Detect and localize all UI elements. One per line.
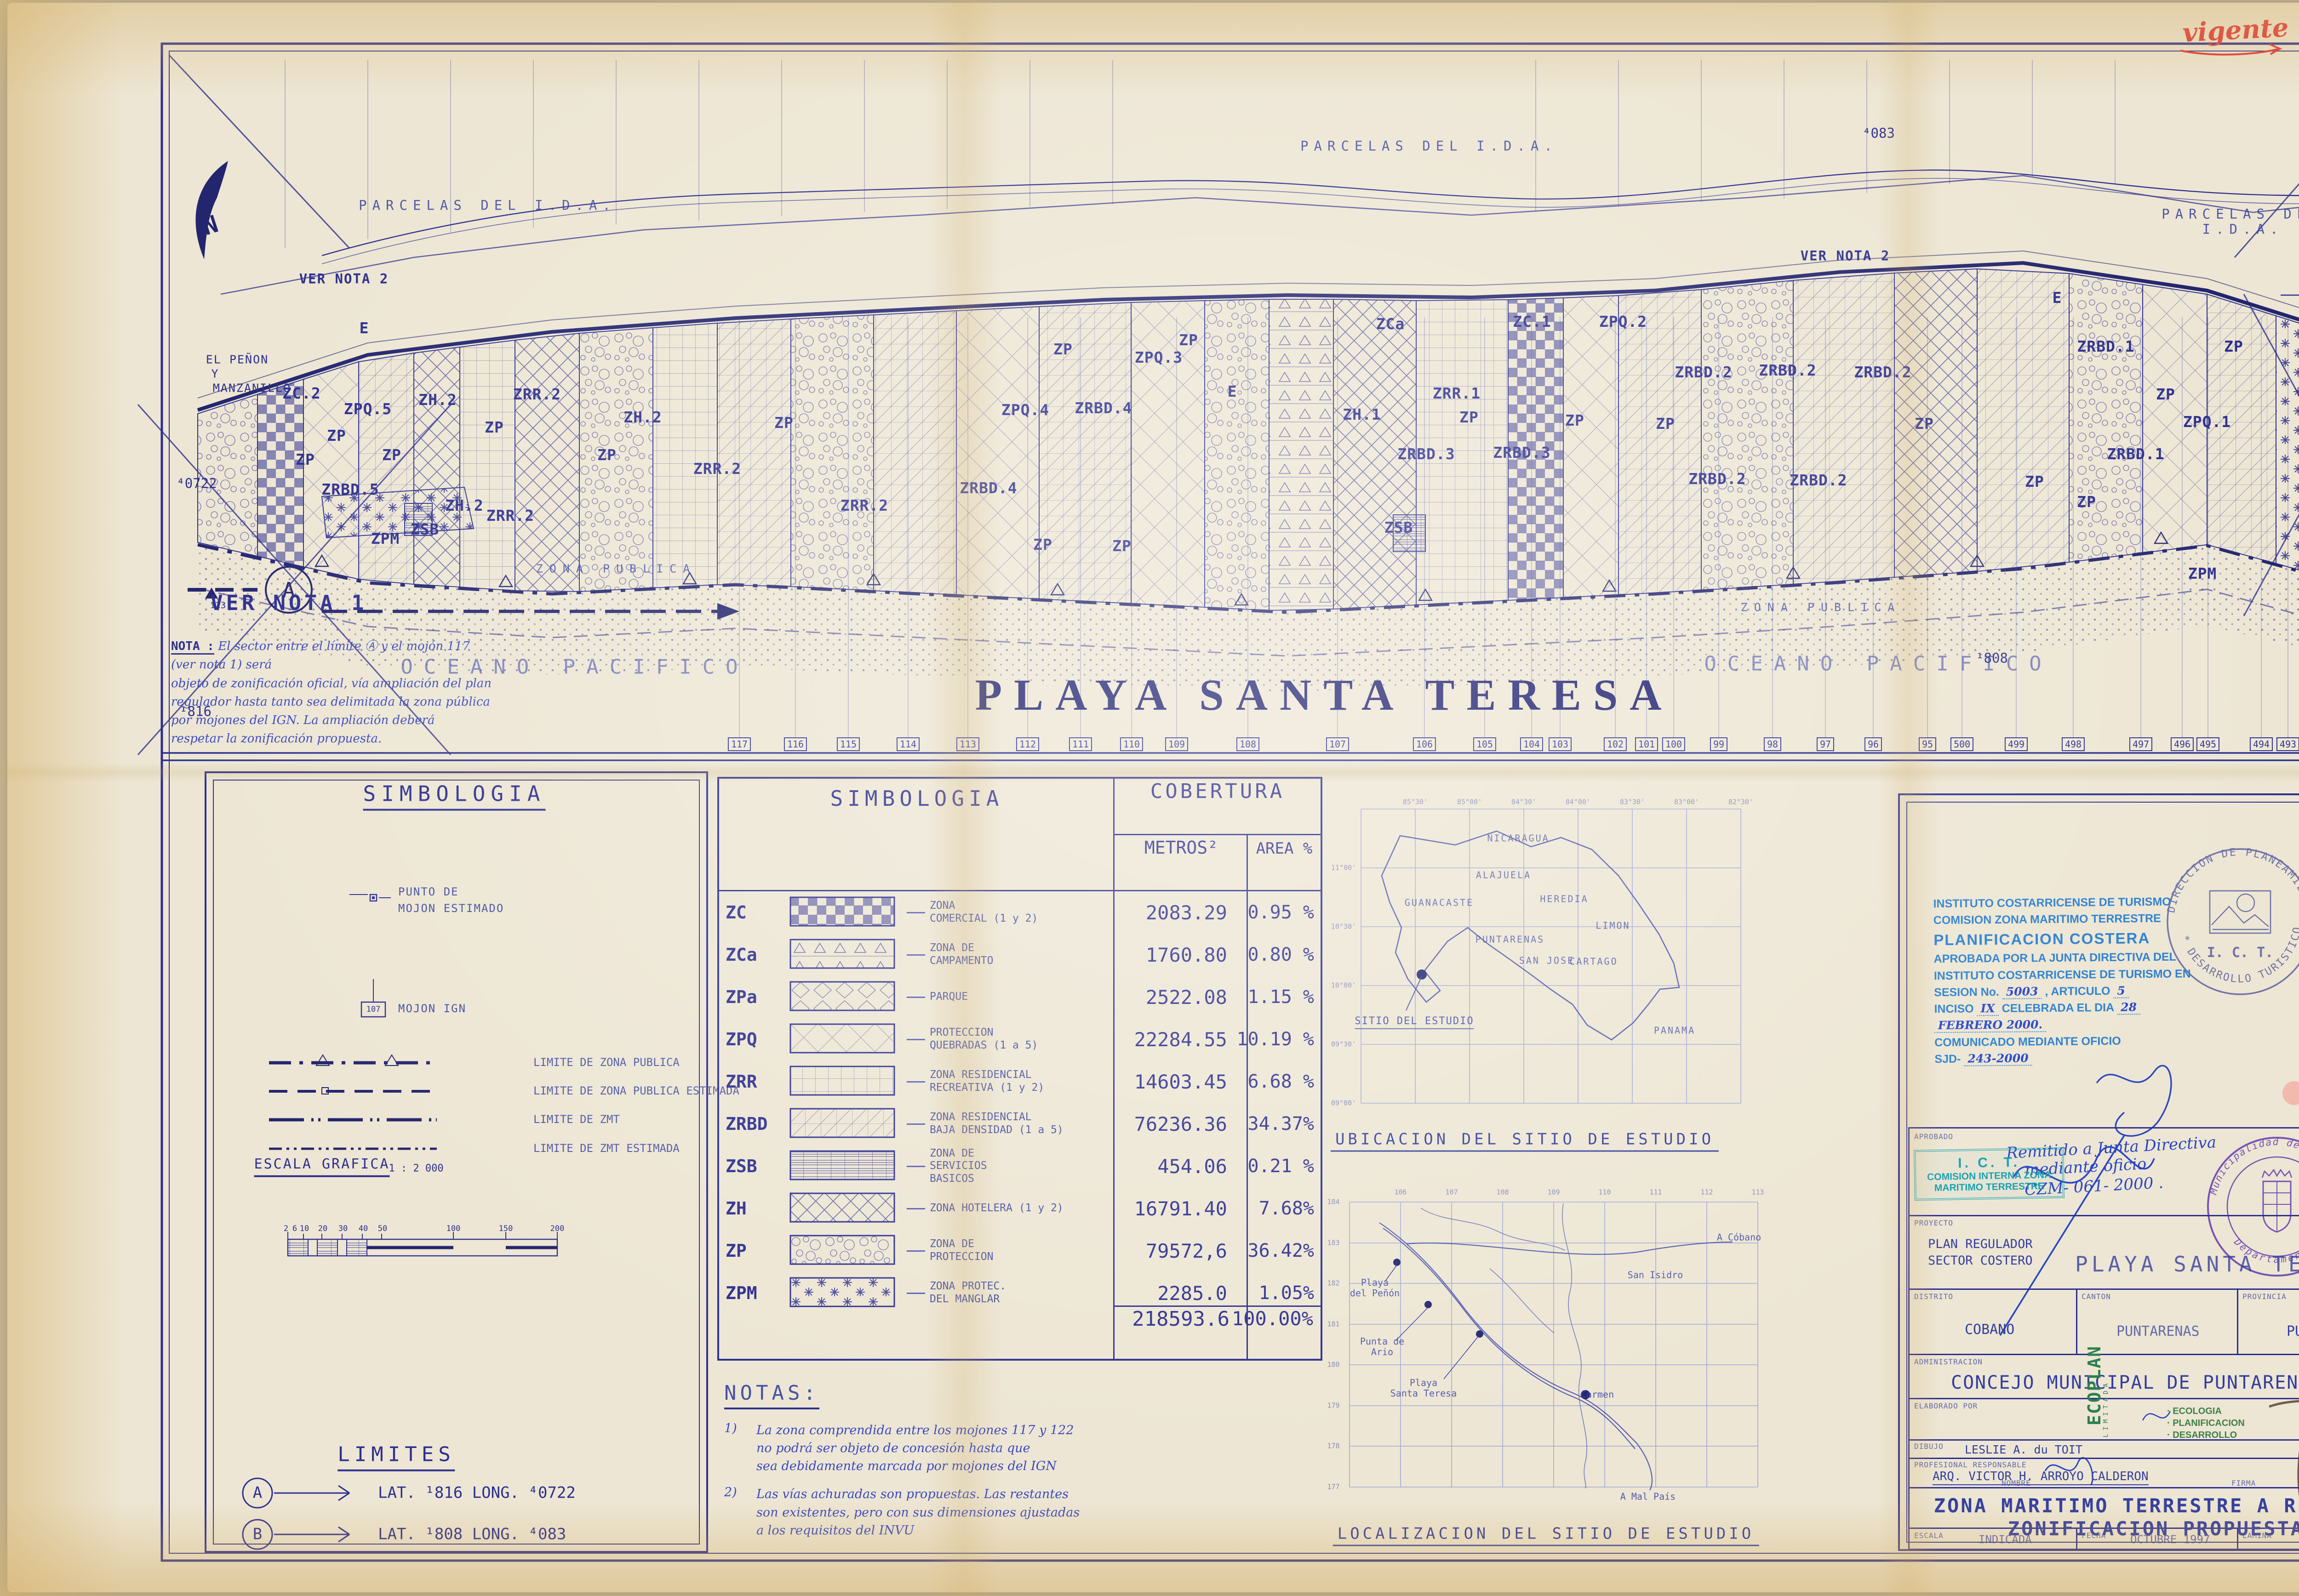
proyecto-label: PROYECTO — [1914, 1219, 1953, 1227]
leader-dash — [907, 1123, 925, 1125]
proyecto-line2: SECTOR COSTERO — [1928, 1254, 2033, 1268]
coverage-row: ZCZONACOMERCIAL (1 y 2)2083.290.95 % — [719, 891, 1321, 934]
proyecto-name: PLAYA SANTA TERESA — [2075, 1252, 2299, 1277]
zone-description: ZONA RESIDENCIALRECREATIVA (1 y 2) — [930, 1069, 1113, 1094]
coverage-row: ZCaZONA DECAMPAMENTO1760.800.80 % — [719, 934, 1321, 976]
table-rows: ZCZONACOMERCIAL (1 y 2)2083.290.95 %ZCaZ… — [719, 891, 1321, 1314]
leader-dash — [907, 1293, 925, 1294]
stamp-field-label: CELEBRADA EL DIA — [2002, 1001, 2114, 1015]
titleblock: APROBADO Remitido a Junta Directiva medi… — [1908, 1127, 2299, 1550]
zone-description: ZONA HOTELERA (1 y 2) — [930, 1202, 1113, 1215]
coverage-row: ZPQPROTECCIONQUEBRADAS (1 a 5)22284.5510… — [719, 1018, 1321, 1060]
zone-metros: 76236.36 — [1113, 1113, 1227, 1135]
stamp-line: APROBADA POR LA JUNTA DIRECTIVA DEL — [1933, 949, 2163, 968]
zone-area: 1.05% — [1227, 1282, 1321, 1304]
zone-code: ZP — [719, 1241, 789, 1261]
zone-area: 7.68% — [1227, 1198, 1321, 1219]
stamp-field-label: SJD- — [1934, 1053, 1961, 1066]
notes-title: NOTAS: — [724, 1381, 819, 1409]
scanned-zoning-plan-sheet: N — [0, 0, 2299, 1596]
ecoplan-name: ECOPLAN — [2084, 1345, 2105, 1425]
firma-label: FIRMA — [2231, 1479, 2256, 1488]
legend-line-label: LIMITE DE ZMT — [533, 1113, 620, 1126]
zone-metros: 79572,6 — [1113, 1240, 1227, 1262]
zone-swatch — [789, 1108, 907, 1140]
coverage-row: ZPaPARQUE2522.081.15 % — [719, 976, 1321, 1018]
stamp-field-label: SESION No. — [1934, 986, 1999, 999]
total-metros: 218593.6 — [1115, 1307, 1230, 1331]
leader-dash — [907, 912, 925, 913]
stamp-line: COMISION ZONA MARITIMO TERRESTRE — [1933, 910, 2163, 929]
zone-metros: 14603.45 — [1113, 1071, 1227, 1093]
zone-swatch — [789, 939, 907, 971]
note-line: respetar la zonificación propuesta. — [171, 730, 493, 748]
coverage-row: ZSBZONA DESERVICIOSBASICOS454.060.21 % — [719, 1145, 1321, 1187]
prof-label: PROFESIONAL RESPONSABLE — [1914, 1460, 2027, 1469]
zone-swatch — [789, 1192, 907, 1225]
zone-code: ZPQ — [719, 1029, 789, 1049]
zone-code: ZCa — [719, 945, 789, 965]
zone-area: 0.80 % — [1227, 944, 1321, 965]
stamp-field-value: FEBRERO 2000. — [1934, 1018, 2047, 1033]
leader-dash — [907, 1081, 925, 1083]
zone-code: ZC — [719, 902, 789, 923]
prof-nombre: ARQ. VICTOR H. ARROYO CALDERON — [1933, 1470, 2149, 1485]
zone-metros: 16791.40 — [1113, 1197, 1227, 1220]
stamp-field-label: INCISO — [1934, 1003, 1973, 1016]
table-divider — [1115, 834, 1321, 835]
nombre-label: NOMBRE — [2002, 1479, 2031, 1488]
scale-label: ESCALA GRAFICA — [254, 1157, 390, 1177]
zone-description: ZONA DESERVICIOSBASICOS — [930, 1147, 1113, 1186]
legend-point-label: PUNTO DEMOJON ESTIMADO — [398, 883, 504, 917]
ubicacion-title: UBICACION DEL SITIO DE ESTUDIO — [1331, 1129, 1719, 1152]
zone-area: 1.15 % — [1227, 986, 1321, 1008]
dibujo-label: DIBUJO — [1914, 1442, 1944, 1451]
fecha-label: FECHA — [2082, 1531, 2106, 1540]
note-lines: objeto de zonificación oficial, vía ampl… — [171, 674, 493, 748]
stamp-field-label: , ARTICULO — [2045, 985, 2110, 998]
escala-value: INDICADA — [1979, 1533, 2032, 1546]
zone-description: ZONA DEPROTECCION — [930, 1238, 1113, 1263]
zone-metros: 454.06 — [1113, 1155, 1227, 1178]
zone-code: ZRR — [719, 1072, 789, 1092]
elaborado-label: ELABORADO POR — [1914, 1402, 1978, 1410]
zone-metros: 2522.08 — [1113, 986, 1227, 1009]
admin-value: CONCEJO MUNICIPAL DE PUNTARENAS — [1951, 1372, 2299, 1393]
leader-dash — [907, 1250, 925, 1252]
stamp-field-value: 5 — [2113, 984, 2129, 998]
map-title: PLAYA SANTA TERESA — [975, 670, 1673, 720]
zone-code: ZPa — [719, 987, 789, 1007]
vigente-annotation: vigente — [2182, 13, 2289, 48]
notes-section: NOTAS: 1)La zona comprendida entre los m… — [724, 1381, 1294, 1550]
eco-bullet1: · ECOLOGIA — [2167, 1406, 2222, 1417]
eco-bullet3: · DESARROLLO — [2167, 1430, 2237, 1441]
coverage-row: ZRRZONA RESIDENCIALRECREATIVA (1 y 2)146… — [719, 1060, 1321, 1103]
leader-dash — [907, 954, 925, 956]
zone-swatch — [789, 896, 907, 929]
limits-title: LIMITES — [337, 1443, 455, 1471]
table-header-area: AREA % — [1248, 839, 1321, 858]
table-total-row: 218593.6 100.00% — [1115, 1307, 1321, 1331]
note-line: por mojones del IGN. La ampliación deber… — [171, 711, 493, 730]
total-area: 100.00% — [1230, 1307, 1320, 1331]
zone-swatch — [789, 981, 907, 1013]
zone-description: ZONA DECAMPAMENTO — [930, 942, 1113, 967]
coverage-row: ZRBDZONA RESIDENCIALBAJA DENSIDAD (1 a 5… — [719, 1103, 1321, 1145]
note-item: 1)La zona comprendida entre los mojones … — [724, 1421, 1294, 1475]
zone-area: 34.37% — [1227, 1113, 1321, 1134]
leader-dash — [907, 1039, 925, 1040]
note-line: regulador hasta tanto sea delimitada la … — [171, 693, 493, 711]
zone-metros: 1760.80 — [1113, 944, 1227, 966]
stamp-field-value: IX — [1977, 1002, 1998, 1016]
note-line: El sector entre el límite Ⓐ y el mojón 1… — [171, 639, 470, 672]
stamp-line: INSTITUTO COSTARRICENSE DE TURISMO EN — [1934, 965, 2164, 984]
distrito-label: DISTRITO — [1914, 1292, 1953, 1301]
zone-code: ZH — [719, 1198, 789, 1219]
zone-code: ZRBD — [719, 1114, 789, 1134]
ict-internal-stamp: I. C. T. COMISION INTERNA ZONA MARITIMO … — [1914, 1147, 2065, 1201]
leader-dash — [907, 1208, 925, 1209]
zone-description: ZONACOMERCIAL (1 y 2) — [930, 900, 1113, 925]
proyecto-line1: PLAN REGULADOR — [1928, 1237, 2033, 1251]
provincia-label: PROVINCIA — [2242, 1292, 2287, 1301]
stamp-line: INSTITUTO COSTARRICENSE DE TURISMO — [1933, 894, 2163, 912]
note-keyword: NOTA : — [171, 639, 214, 655]
table-header-simbologia: SIMBOLOGIA — [719, 786, 1115, 811]
note-line: objeto de zonificación oficial, vía ampl… — [171, 674, 493, 693]
zone-description: PROTECCIONQUEBRADAS (1 a 5) — [930, 1026, 1113, 1052]
dibujo-value: LESLIE A. du TOIT — [1965, 1443, 2082, 1456]
zone-area: 0.21 % — [1227, 1156, 1321, 1177]
legend-ign-label: MOJON IGN — [398, 1000, 466, 1017]
legend-line-label: LIMITE DE ZONA PUBLICA — [533, 1056, 680, 1069]
lamina-label: LAMINA — [2242, 1531, 2272, 1540]
stamp-line: PLANIFICACION COSTERA — [1933, 927, 2163, 951]
zone-swatch — [789, 1023, 907, 1055]
ict-approval-stamp: INSTITUTO COSTARRICENSE DE TURISMO COMIS… — [1933, 894, 2164, 1067]
zone-swatch — [789, 1150, 907, 1182]
localizacion-title: LOCALIZACION DEL SITIO DE ESTUDIO — [1333, 1523, 1759, 1546]
table-header-cobertura: COBERTURA — [1115, 780, 1321, 803]
limit-point-b: B — [253, 1525, 262, 1543]
note-text: Las vías achuradas son propuestas. Las r… — [756, 1485, 1080, 1539]
coverage-row: ZHZONA HOTELERA (1 y 2)16791.407.68% — [719, 1187, 1321, 1230]
canton-value: PUNTARENAS — [2116, 1323, 2200, 1339]
limit-row-b: LAT. ¹808 LONG. ⁴083 — [378, 1525, 566, 1543]
distrito-value: COBANO — [1965, 1322, 2014, 1338]
zone-area: 36.42% — [1227, 1240, 1321, 1261]
eco-bullet2: · PLANIFICACION — [2167, 1418, 2245, 1429]
sheet-title-line1: ZONA MARITIMO TERRESTRE A REGULAR — [1926, 1494, 2299, 1517]
zone-code: ZPM — [719, 1283, 789, 1303]
stamp-field-label: COMUNICADO MEDIANTE OFICIO — [1934, 1034, 2121, 1049]
stamp-field-value: 5003 — [2002, 985, 2042, 999]
note-text: La zona comprendida entre los mojones 11… — [756, 1421, 1074, 1475]
limit-row-a: LAT. ¹816 LONG. ⁴0722 — [378, 1484, 576, 1502]
leader-dash — [907, 1166, 925, 1167]
legend-line-label: LIMITE DE ZONA PUBLICA ESTIMADA — [533, 1085, 739, 1098]
legend-title: SIMBOLOGIA — [363, 782, 546, 811]
provincia-value: PUNTARENAS — [2287, 1323, 2299, 1339]
zone-code: ZSB — [719, 1156, 789, 1176]
zone-description: ZONA PROTEC.DEL MANGLAR — [930, 1280, 1113, 1305]
zone-description: PARQUE — [930, 991, 1113, 1003]
canton-label: CANTON — [2082, 1292, 2111, 1301]
ecoplan-sub: L I M I T A D A — [2103, 1384, 2110, 1437]
scale-ratio: 1 : 2 000 — [389, 1163, 443, 1174]
zone-metros: 22284.55 — [1113, 1028, 1227, 1051]
zone-area: 0.95 % — [1227, 902, 1321, 923]
zone-area: 10.19 % — [1227, 1029, 1321, 1050]
limit-point-a: A — [253, 1484, 262, 1502]
zone-swatch — [789, 1066, 907, 1098]
note-item: 2)Las vías achuradas son propuestas. Las… — [724, 1485, 1294, 1539]
zone-area: 6.68 % — [1227, 1071, 1321, 1092]
map-note: NOTA : El sector entre el límite Ⓐ y el … — [171, 637, 493, 748]
admin-label: ADMINISTRACION — [1914, 1357, 1983, 1366]
zone-swatch — [789, 1235, 907, 1267]
zone-metros: 2083.29 — [1113, 901, 1227, 924]
aprobado-label: APROBADO — [1914, 1132, 1953, 1141]
fecha-value: OCTUBRE 1997 — [2130, 1533, 2210, 1546]
zone-metros: 2285.0 — [1113, 1282, 1227, 1305]
legend-ign-tag: 107 — [366, 1005, 381, 1015]
coverage-table: SIMBOLOGIA COBERTURA METROS² AREA % ZCZO… — [717, 777, 1322, 1361]
zone-swatch — [789, 1277, 907, 1309]
stamp-field-value: 243-2000 — [1964, 1051, 2032, 1066]
zone-description: ZONA RESIDENCIALBAJA DENSIDAD (1 a 5) — [930, 1111, 1113, 1136]
coverage-row: ZPZONA DEPROTECCION79572,636.42% — [719, 1230, 1321, 1272]
escala-label: ESCALA — [1914, 1531, 1944, 1540]
stamp-field-value: 28 — [2117, 1000, 2140, 1015]
leader-dash — [907, 997, 925, 998]
legend-line-label: LIMITE DE ZMT ESTIMADA — [533, 1142, 680, 1155]
table-header-metros: METROS² — [1115, 838, 1248, 858]
notes-list: 1)La zona comprendida entre los mojones … — [724, 1421, 1294, 1539]
note-number: 1) — [724, 1421, 756, 1475]
note-number: 2) — [724, 1485, 756, 1539]
